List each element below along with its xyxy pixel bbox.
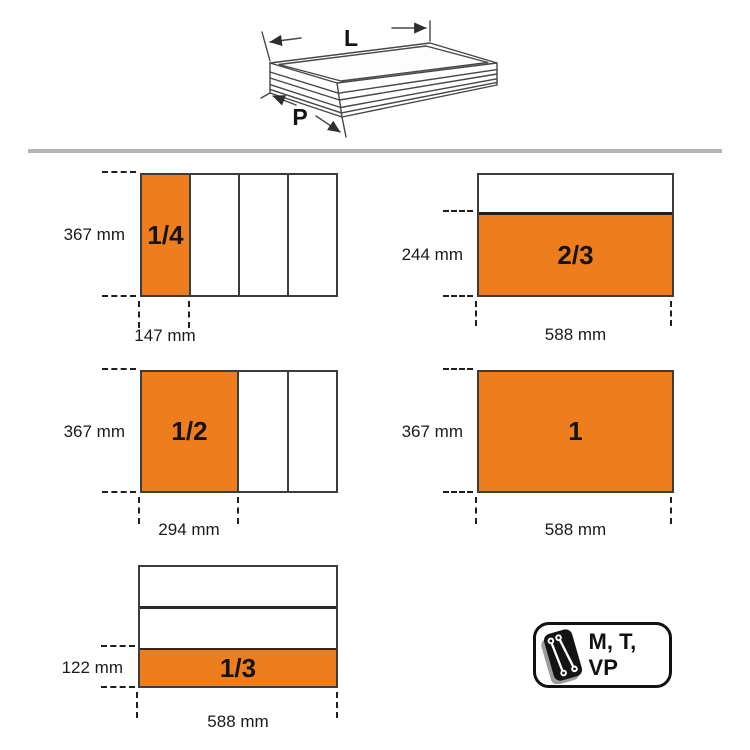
empty-section xyxy=(289,175,336,295)
dim-tick xyxy=(443,295,473,297)
empty-section xyxy=(289,372,337,491)
height-dimension: 122 mm xyxy=(28,646,123,690)
empty-section xyxy=(240,175,289,295)
dim-tick xyxy=(138,301,140,328)
empty-section xyxy=(239,372,289,491)
dim-tick xyxy=(102,491,136,493)
width-dimension: 588 mm xyxy=(187,712,289,732)
full-highlighted-section: 1 xyxy=(479,372,672,491)
dim-tick xyxy=(102,368,136,370)
quarter-highlighted-section: 1/4 xyxy=(142,175,191,295)
dim-tick xyxy=(475,301,477,326)
dim-tick xyxy=(443,491,473,493)
wrenches-tray-icon xyxy=(541,626,586,684)
dim-tick xyxy=(101,645,135,647)
dim-tick xyxy=(443,368,473,370)
fraction-label: 1/4 xyxy=(147,220,183,251)
drawer-size-spec-page: L P 1/4 367 mm 147 mm 2/3 244 mm 588 mm … xyxy=(0,0,750,750)
height-dimension: 367 mm xyxy=(30,370,125,493)
fraction-label: 1/3 xyxy=(220,653,256,684)
diagram-half-drawer: 1/2 xyxy=(140,370,338,493)
two-thirds-highlighted-section: 2/3 xyxy=(479,215,672,295)
fraction-label: 2/3 xyxy=(557,240,593,271)
width-dimension: 588 mm xyxy=(525,325,626,345)
diagram-full-drawer: 1 xyxy=(477,370,674,493)
diagram-two-thirds-drawer: 2/3 xyxy=(477,173,674,297)
dim-tick xyxy=(670,301,672,326)
dim-tick xyxy=(188,301,190,328)
fraction-label: 1/2 xyxy=(171,416,207,447)
badge-label: M, T, VP xyxy=(589,629,669,681)
empty-section xyxy=(479,175,672,215)
dim-tick xyxy=(336,692,338,718)
height-dimension: 367 mm xyxy=(30,173,125,297)
empty-section xyxy=(191,175,240,295)
drawer-illustration: L P xyxy=(253,5,525,140)
diagram-third-drawer: 1/3 xyxy=(138,565,338,688)
drawer-type-badge: M, T, VP xyxy=(533,622,672,688)
empty-section xyxy=(140,567,336,609)
empty-section xyxy=(140,609,336,650)
dim-tick xyxy=(475,497,477,524)
width-dimension: 588 mm xyxy=(525,520,626,540)
third-highlighted-section: 1/3 xyxy=(140,650,336,686)
half-highlighted-section: 1/2 xyxy=(142,372,239,491)
fraction-label: 1 xyxy=(568,416,582,447)
width-dimension: 147 mm xyxy=(113,326,217,346)
depth-dimension-label: P xyxy=(292,104,307,130)
width-dimension: 294 mm xyxy=(138,520,240,540)
dim-tick xyxy=(101,686,135,688)
height-dimension: 244 mm xyxy=(375,212,463,297)
dim-tick xyxy=(102,171,136,173)
length-dimension-label: L xyxy=(344,25,358,51)
dim-tick xyxy=(670,497,672,524)
height-dimension: 367 mm xyxy=(375,370,463,493)
section-divider xyxy=(28,149,722,153)
dim-tick xyxy=(102,295,136,297)
dim-tick xyxy=(136,692,138,718)
dim-tick xyxy=(443,210,473,212)
diagram-quarter-drawer: 1/4 xyxy=(140,173,338,297)
